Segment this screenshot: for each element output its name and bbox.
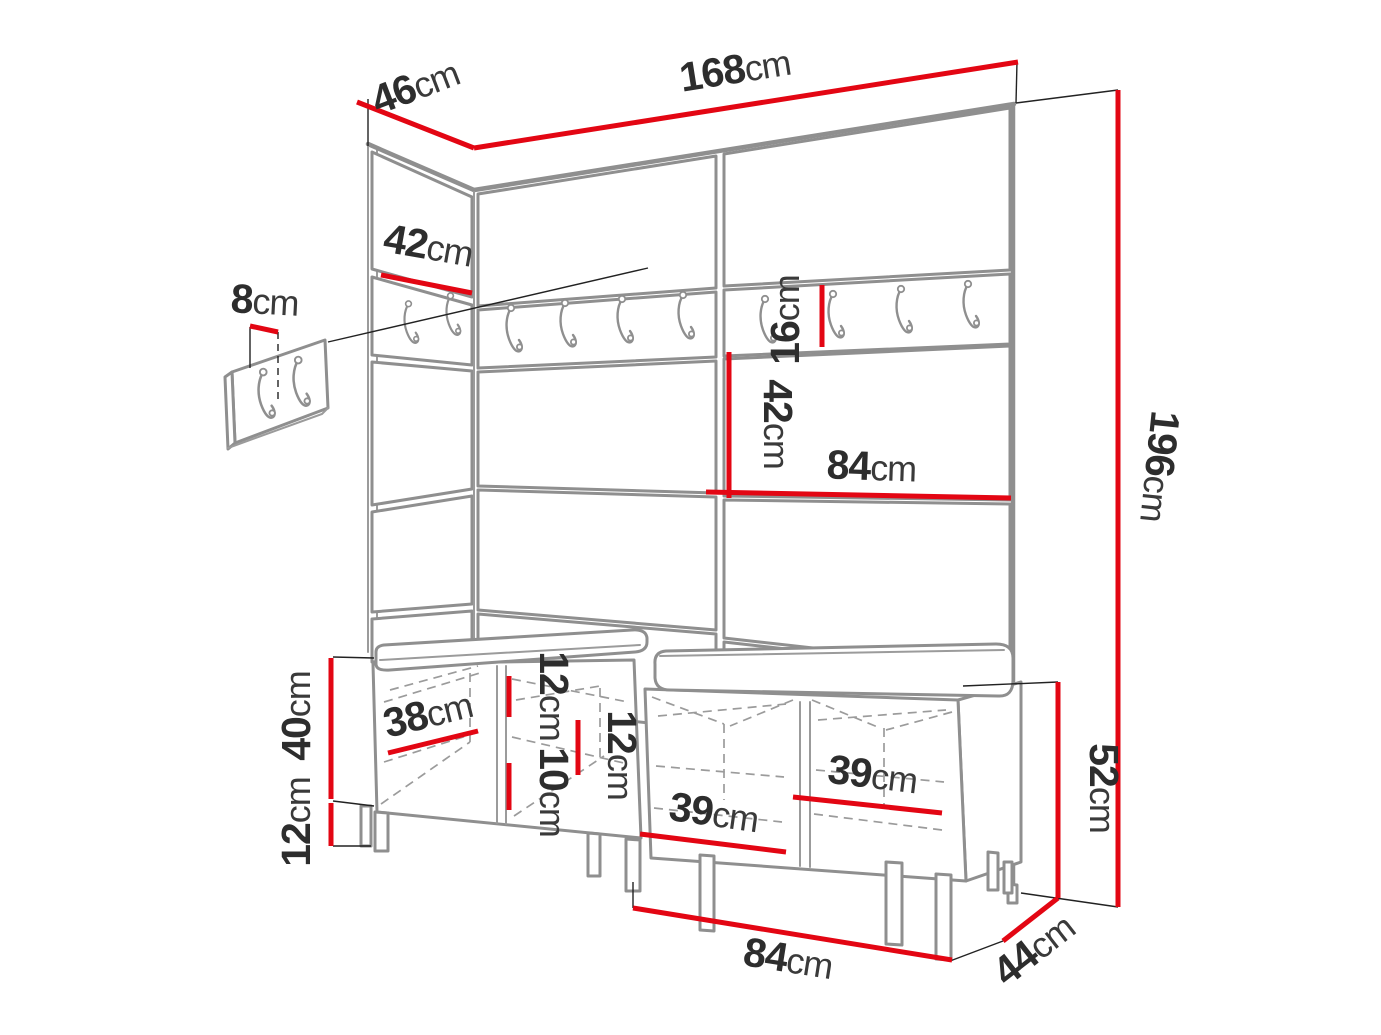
dimension-label: 196cm xyxy=(1131,409,1188,525)
dimension-label: 168cm xyxy=(676,38,793,101)
dimension-label: 40cm xyxy=(273,671,319,761)
dimension-8cm-wall-panel: 8cm xyxy=(230,275,300,332)
dimension-46cm: 46cm xyxy=(357,48,474,148)
dimension-label: 46cm xyxy=(365,48,465,123)
dimension-label: 16cm xyxy=(762,275,808,365)
dimension-84cm-bench-width: 84cm xyxy=(633,908,952,988)
dimension-label: 12cm xyxy=(273,777,319,867)
dimension-label: 12cm xyxy=(531,651,577,741)
dimension-label: 8cm xyxy=(230,275,300,324)
dimension-diagram: 46cm 168cm 42cm 8cm 16cm 42cm 84cm 196cm… xyxy=(0,0,1381,1035)
bench-cushion xyxy=(655,644,1013,696)
dimension-label: 42cm xyxy=(755,379,801,469)
dimension-196cm-total-height: 196cm xyxy=(1118,90,1189,907)
dimension-label: 12cm xyxy=(599,710,645,800)
dimension-44cm-bench-depth: 44cm xyxy=(984,898,1083,995)
dimension-label: 84cm xyxy=(826,441,917,490)
dimension-label: 10cm xyxy=(531,747,577,837)
dimension-line xyxy=(250,326,278,332)
dimension-label: 52cm xyxy=(1081,743,1127,833)
dimension-12cm-bench-leg: 12cm xyxy=(273,777,331,867)
